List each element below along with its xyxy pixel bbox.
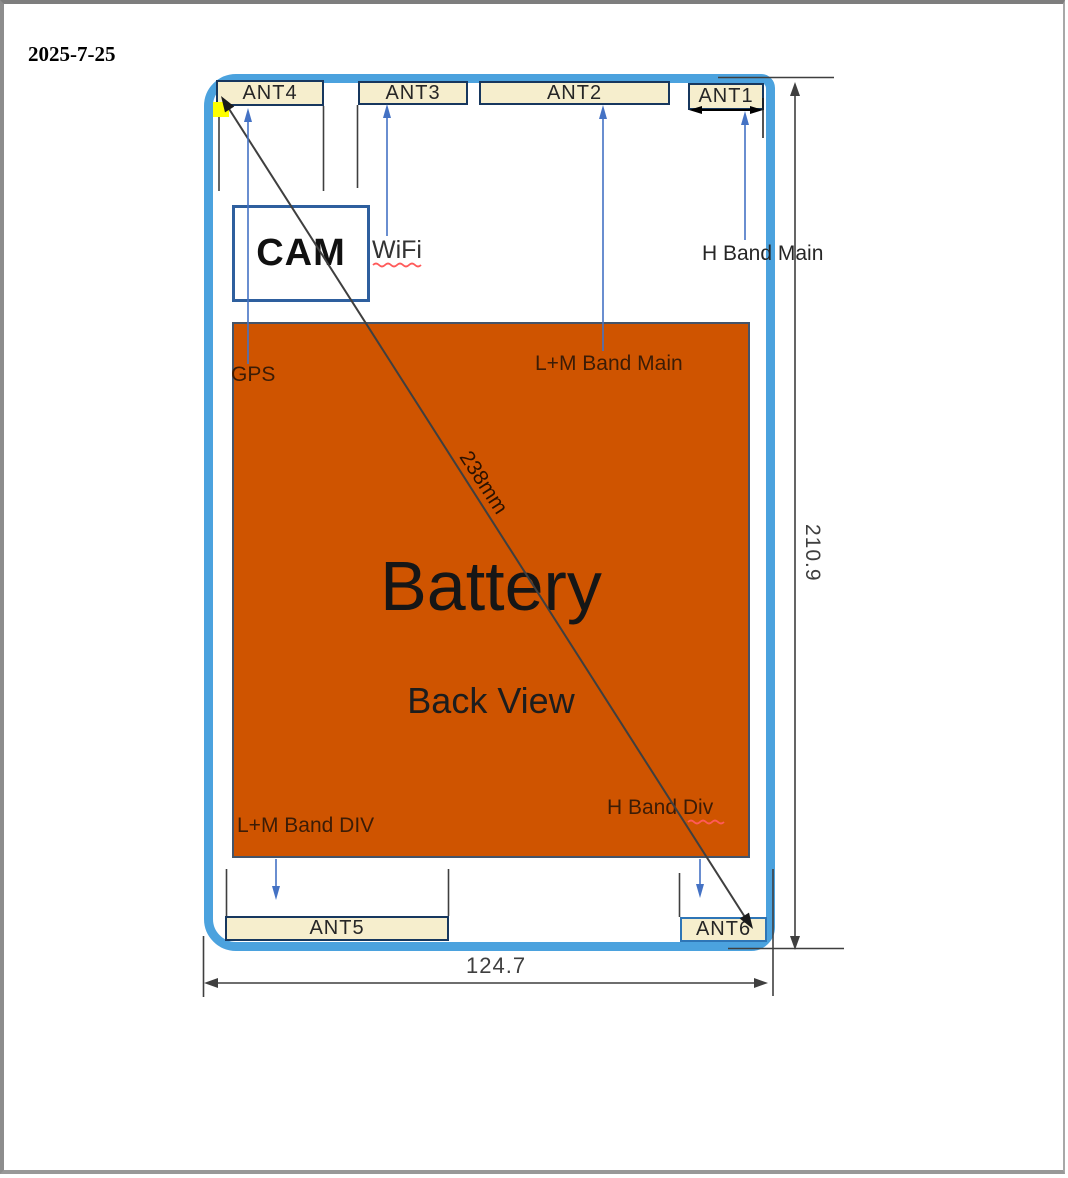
battery-label: Battery (234, 546, 748, 626)
width-dimension-text: 124.7 (466, 953, 526, 979)
back-view-label: Back View (234, 680, 748, 722)
antenna-ant3-label: ANT3 (385, 82, 440, 105)
antenna-ant4: ANT4 (216, 80, 324, 106)
height-dimension-text: 210.9 (800, 524, 824, 582)
h-band-main-label: H Band Main (702, 242, 823, 266)
antenna-ant5: ANT5 (225, 916, 449, 941)
camera-box: CAM (232, 205, 370, 302)
antenna-layout-page: 2025-7-25 ANT4 ANT3 ANT2 ANT1 ANT5 ANT6 … (0, 0, 1068, 1178)
document-date: 2025-7-25 (28, 42, 116, 67)
antenna-ant4-label: ANT4 (242, 82, 297, 105)
antenna-ant1: ANT1 (688, 83, 764, 110)
lm-band-div-label: L+M Band DIV (237, 814, 374, 838)
antenna-ant6: ANT6 (680, 917, 767, 942)
antenna-ant5-label: ANT5 (309, 917, 364, 940)
battery-region: Battery Back View (232, 322, 750, 858)
antenna-ant6-label: ANT6 (696, 918, 751, 941)
gps-label: GPS (231, 363, 275, 387)
lm-band-main-label: L+M Band Main (535, 352, 683, 376)
antenna-ant2: ANT2 (479, 81, 670, 105)
antenna-ant3: ANT3 (358, 81, 468, 105)
antenna-ant2-label: ANT2 (547, 82, 602, 105)
camera-label: CAM (256, 232, 346, 275)
h-band-div-label: H Band Div (607, 796, 713, 820)
antenna-ant1-label: ANT1 (698, 85, 753, 108)
wifi-label: WiFi (372, 236, 422, 265)
